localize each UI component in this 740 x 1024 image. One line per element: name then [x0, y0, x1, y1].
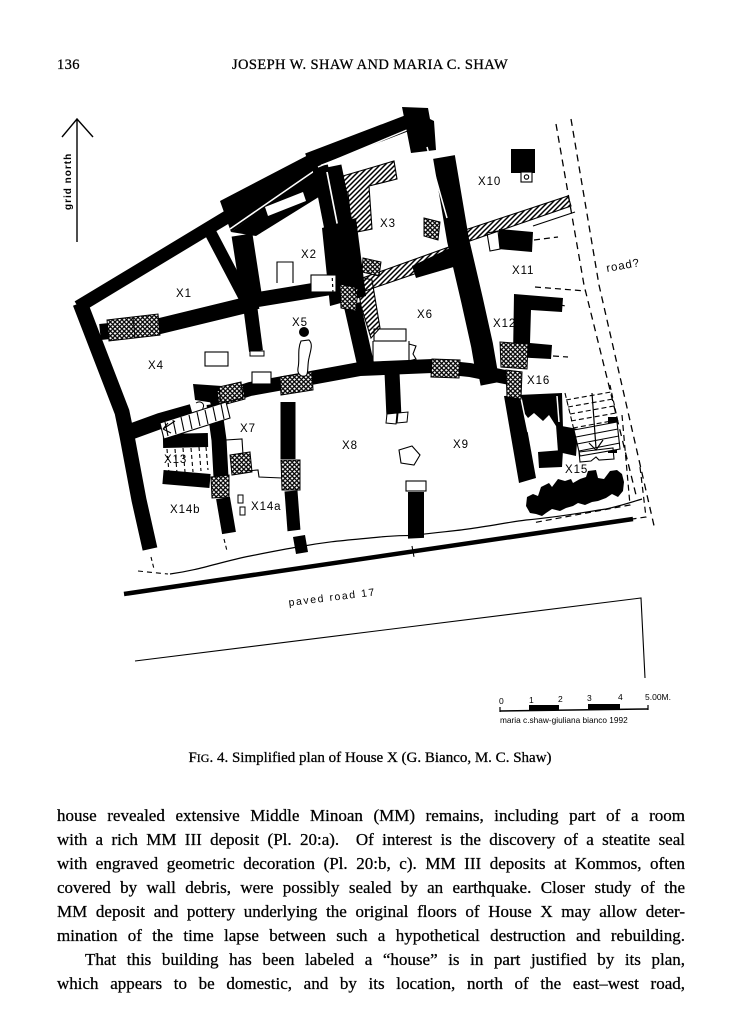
svg-text:X15: X15 — [565, 464, 588, 476]
svg-text:X10: X10 — [478, 176, 501, 188]
svg-text:5.00M.: 5.00M. — [645, 692, 671, 702]
svg-text:0: 0 — [499, 696, 504, 706]
svg-text:X11: X11 — [512, 265, 534, 277]
svg-text:3: 3 — [587, 693, 592, 703]
svg-text:X7: X7 — [240, 423, 256, 435]
svg-text:2: 2 — [558, 694, 563, 704]
svg-text:X1: X1 — [176, 288, 192, 300]
svg-text:maria c.shaw-giuliana bianco 1: maria c.shaw-giuliana bianco 1992 — [500, 715, 628, 725]
svg-text:4: 4 — [618, 692, 623, 702]
svg-text:X2: X2 — [301, 249, 317, 261]
svg-text:X9: X9 — [453, 439, 469, 451]
svg-text:X16: X16 — [527, 375, 550, 387]
svg-text:X12: X12 — [493, 318, 516, 330]
svg-text:X6: X6 — [417, 309, 433, 321]
svg-text:X14b: X14b — [170, 504, 200, 516]
svg-text:road?: road? — [605, 257, 640, 275]
svg-text:X5: X5 — [292, 317, 308, 329]
svg-text:X3: X3 — [380, 218, 396, 230]
svg-text:X13: X13 — [164, 454, 187, 466]
svg-text:X4: X4 — [148, 360, 164, 372]
svg-text:paved road 17: paved road 17 — [288, 586, 377, 609]
svg-text:X8: X8 — [342, 440, 358, 452]
svg-text:X14a: X14a — [251, 501, 281, 513]
svg-text:grid north: grid north — [63, 153, 74, 210]
svg-text:1: 1 — [529, 695, 534, 705]
